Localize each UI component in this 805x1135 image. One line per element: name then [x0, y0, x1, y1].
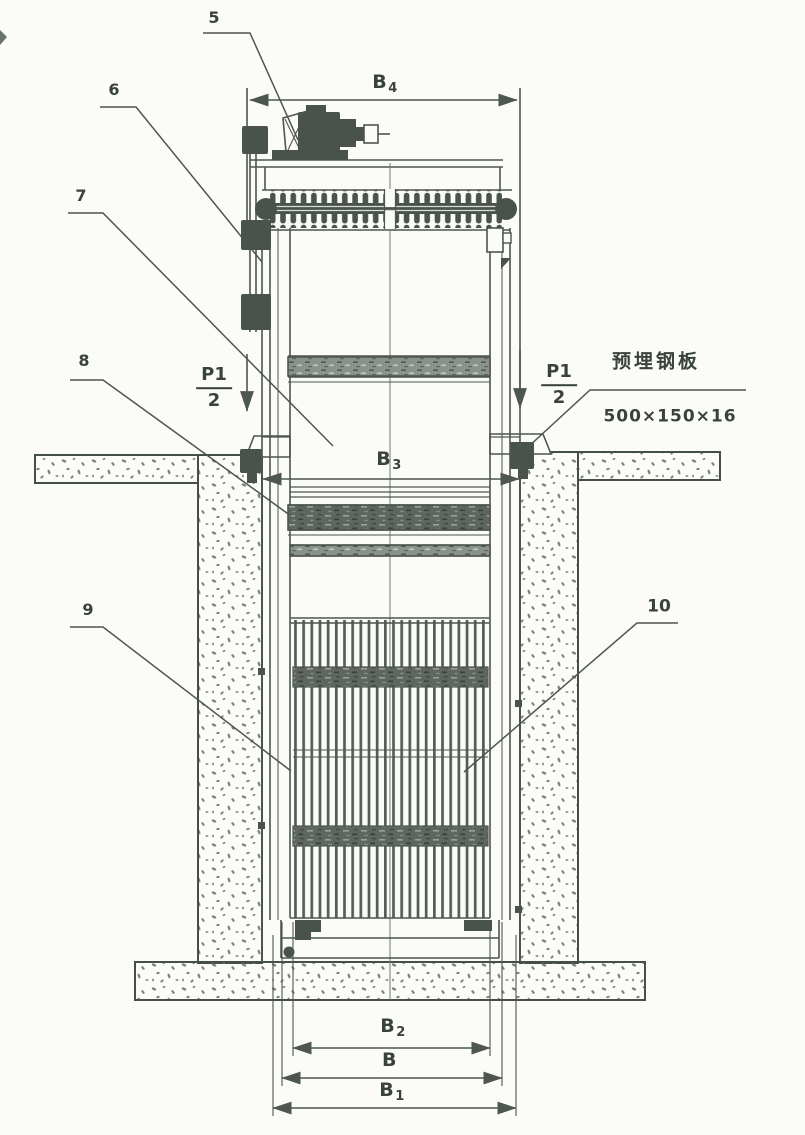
embedded-plate-size: 500×150×16	[603, 409, 736, 426]
callout-8-label: 8	[78, 353, 89, 369]
callout-10-label: 10	[647, 599, 671, 616]
load-label-left: P1 2	[196, 365, 232, 411]
sprocket-hub-left	[255, 198, 277, 220]
dimension-label-b1: B1	[379, 1081, 405, 1103]
dimension-label-b4: B4	[372, 73, 398, 95]
left-deck-slab	[35, 455, 198, 483]
bar-screen-grid	[258, 618, 522, 918]
dimension-label-b: B	[382, 1051, 398, 1073]
right-channel-wall	[520, 452, 578, 963]
rake-chain-band-upper	[293, 667, 488, 687]
thin-stripe-band	[290, 545, 490, 556]
dimension-label-b2: B2	[380, 1017, 406, 1039]
right-top-bracket	[487, 228, 503, 252]
upper-support-band	[288, 357, 490, 376]
callout-5-label: 5	[208, 10, 219, 26]
bottom-bracket-left	[295, 920, 321, 932]
left-channel-wall	[198, 455, 262, 963]
motor-shaft-end	[364, 125, 378, 143]
bracket-clamp-low	[241, 294, 271, 330]
right-deck-slab	[578, 452, 720, 480]
callout-9-label: 9	[82, 602, 93, 618]
scan-artifact	[0, 30, 7, 45]
anchor-left	[247, 471, 257, 483]
bar-screen-drawing-canvas	[0, 0, 805, 1135]
callout-7-leader	[68, 213, 333, 446]
callout-6-label: 6	[108, 82, 119, 98]
sprocket-hub-right	[495, 198, 517, 220]
embedded-plate-label: 预埋钢板	[612, 353, 700, 372]
callout-7-label: 7	[75, 188, 86, 204]
sealing-band	[288, 505, 490, 530]
bottom-bracket-right	[464, 920, 492, 931]
bracket-clamp-top	[242, 126, 268, 154]
callout-6-leader	[100, 107, 262, 262]
embedded-plate-right	[510, 442, 534, 469]
bracket-clamp-mid	[241, 220, 271, 250]
technical-drawing-page: 5 6 7 8 9 10 B4 B3 B2 B B1 P1 2 P1 2 预埋钢…	[0, 0, 805, 1135]
dimension-label-b3: B3	[376, 450, 402, 472]
embedded-plate-left	[240, 449, 262, 473]
load-label-right: P1 2	[541, 362, 577, 408]
rake-chain-sprocket	[255, 189, 517, 229]
rake-chain-band-lower	[293, 826, 488, 846]
